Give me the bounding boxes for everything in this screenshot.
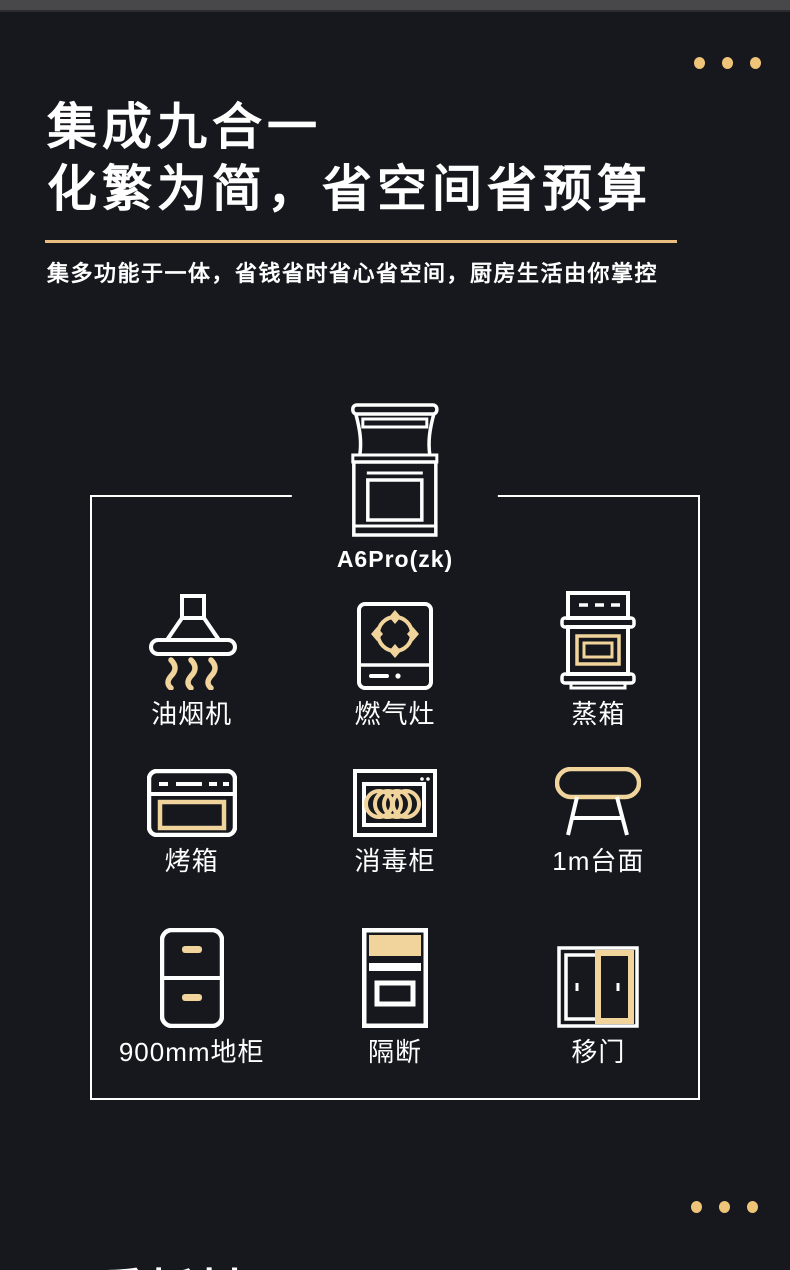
- oven-icon: [147, 769, 237, 837]
- feature-gas-stove: 燃气灶: [293, 495, 496, 728]
- gold-divider: [45, 240, 677, 243]
- feature-disinfection-cabinet: 消毒柜: [293, 728, 496, 875]
- feature-label: 隔断: [368, 1038, 422, 1066]
- feature-label: 900mm地柜: [119, 1038, 265, 1066]
- gold-dot: [750, 57, 761, 69]
- feature-label: 1m台面: [552, 847, 644, 875]
- next-section-title-partial: 三重板材: [50, 1255, 550, 1270]
- range-hood-icon: [144, 594, 240, 690]
- feature-oven: 烤箱: [90, 728, 293, 875]
- dots-decoration-top: [694, 57, 761, 69]
- gold-dot: [747, 1201, 758, 1213]
- disinfection-cabinet-icon: [353, 769, 437, 837]
- feature-label: 蒸箱: [571, 700, 625, 728]
- feature-label: 油烟机: [151, 700, 232, 728]
- gold-dot: [722, 57, 733, 69]
- gold-dot: [694, 57, 705, 69]
- gas-stove-icon: [357, 602, 433, 690]
- feature-steam-oven: 蒸箱: [497, 495, 700, 728]
- partition-icon: [362, 928, 428, 1028]
- feature-partition: 隔断: [293, 875, 496, 1066]
- feature-base-cabinet: 900mm地柜: [90, 875, 293, 1066]
- feature-grid: 油烟机 燃气灶: [90, 495, 700, 1100]
- feature-countertop: 1m台面: [497, 728, 700, 875]
- dots-decoration-bottom: [691, 1201, 758, 1213]
- feature-sliding-door: 移门: [497, 875, 700, 1066]
- section-title-line2: 化繁为简，省空间省预算: [47, 158, 652, 220]
- base-cabinet-icon: [160, 928, 224, 1028]
- feature-label: 燃气灶: [354, 700, 435, 728]
- section-title: 集成九合一 化繁为简，省空间省预算: [47, 96, 652, 220]
- sliding-door-icon: [557, 946, 639, 1028]
- feature-label: 移门: [571, 1038, 625, 1066]
- top-strip: [0, 0, 790, 12]
- promo-page: 集成九合一 化繁为简，省空间省预算 集多功能于一体，省钱省时省心省空间，厨房生活…: [0, 0, 790, 1270]
- section-title-line1: 集成九合一: [47, 96, 652, 158]
- feature-label: 烤箱: [165, 847, 219, 875]
- countertop-icon: [555, 767, 641, 837]
- section-subtitle: 集多功能于一体，省钱省时省心省空间，厨房生活由你掌控: [47, 256, 658, 288]
- feature-label: 消毒柜: [354, 847, 435, 875]
- gold-dot: [691, 1201, 702, 1213]
- gold-dot: [719, 1201, 730, 1213]
- feature-range-hood: 油烟机: [90, 495, 293, 728]
- steam-oven-icon: [559, 591, 637, 690]
